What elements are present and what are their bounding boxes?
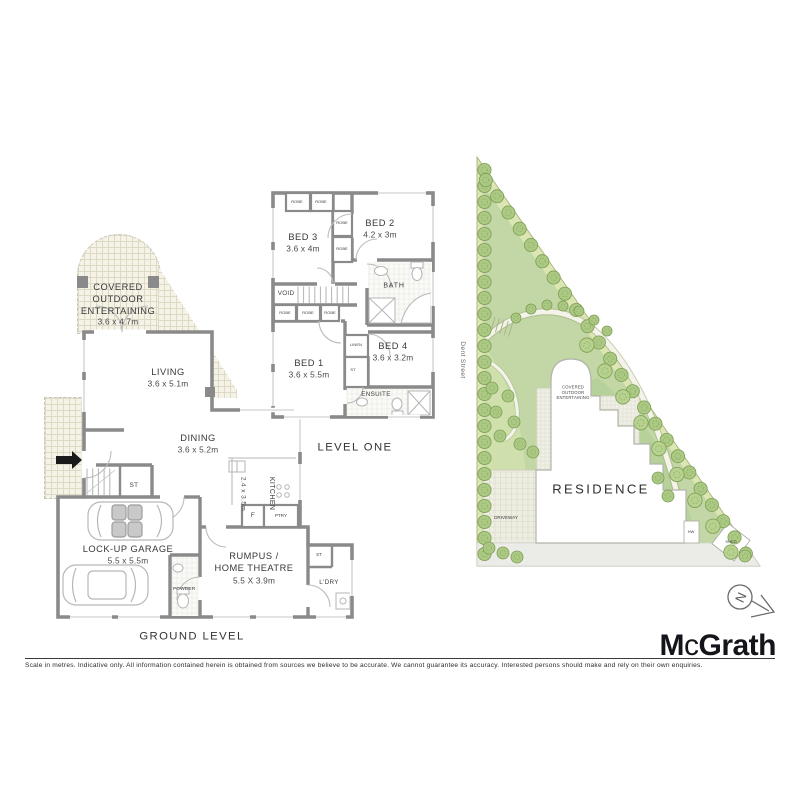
label-robe: ROBE [336, 220, 348, 225]
label-void: VOID [278, 290, 295, 298]
label-bed3: BED 3 [288, 231, 317, 243]
label-site-covered-outdoor: COVERED OUTDOOR ENTERTAINING [556, 385, 589, 401]
label-bed1: BED 1 [294, 357, 323, 369]
label-dining: DINING [180, 432, 216, 444]
label-robe: ROBE [324, 310, 336, 315]
label-garage-size: 5.5 x 5.5m [108, 556, 149, 567]
label-pantry: PTRY [275, 513, 287, 519]
label-robe: ROBE [336, 246, 348, 251]
label-bath: BATH [383, 281, 404, 290]
footer-divider [25, 658, 775, 659]
entry-arrow-icon [56, 451, 82, 469]
label-fridge: F [251, 512, 255, 520]
label-residence: RESIDENCE [552, 482, 649, 499]
street-name: Dent Street [458, 341, 466, 378]
label-robe: ROBE [279, 310, 291, 315]
label-living: LIVING [151, 366, 184, 378]
ground-level-title: GROUND LEVEL [139, 630, 244, 645]
label-bed1-size: 3.6 x 5.5m [289, 370, 330, 381]
label-living-size: 3.6 x 5.1m [148, 379, 189, 390]
label-robe: ROBE [315, 199, 327, 204]
laundry-fixtures [336, 593, 350, 609]
label-powder: POWDER [173, 586, 195, 592]
label-bed2: BED 2 [365, 217, 394, 229]
label-driveway: DRIVEWAY [494, 515, 518, 521]
floorplan-sheet: COVERED OUTDOOR ENTERTAINING 3.6 x 4.7m … [0, 0, 800, 800]
car-icon [63, 565, 148, 605]
label-laundry: L'DRY [319, 579, 338, 587]
label-ensuite: ENSUITE [361, 391, 390, 399]
site-plan [477, 157, 760, 566]
label-bed3-size: 3.6 x 4m [286, 244, 319, 255]
label-bed4-size: 3.6 x 3.2m [373, 353, 414, 364]
label-laundry-store: ST [316, 552, 322, 558]
label-dining-size: 3.6 x 5.2m [178, 445, 219, 456]
car-icon [88, 502, 173, 540]
label-shed: SHED [725, 539, 736, 544]
label-rumpus-size: 5.5 X 3.9m [233, 576, 275, 587]
label-bed2-size: 4.2 x 3m [363, 230, 396, 241]
label-covered-outdoor-size: 3.6 x 4.7m [98, 317, 139, 328]
disclaimer-text: Scale in metres. Indicative only. All in… [25, 662, 775, 669]
label-robe: ROBE [302, 310, 314, 315]
label-hot-water: HW [688, 529, 695, 534]
north-arrow-head [751, 595, 774, 617]
label-linen: LINEN [350, 342, 362, 347]
label-garage: LOCK-UP GARAGE [83, 543, 174, 555]
plan-geometry [0, 0, 800, 800]
label-store: ST [350, 367, 355, 372]
label-kitchen: KITCHEN 2.4 x 3.5m [217, 477, 297, 511]
label-robe: ROBE [291, 199, 303, 204]
label-rumpus: RUMPUS / HOME THEATRE [214, 550, 293, 574]
label-kitchen-size: 2.4 x 3.5m [238, 477, 246, 511]
label-kitchen-name: KITCHEN [267, 477, 276, 511]
level-one-title: LEVEL ONE [318, 441, 393, 456]
label-bed4: BED 4 [378, 340, 407, 352]
label-covered-outdoor: COVERED OUTDOOR ENTERTAINING [81, 281, 155, 317]
label-stair-store: ST [130, 482, 139, 490]
